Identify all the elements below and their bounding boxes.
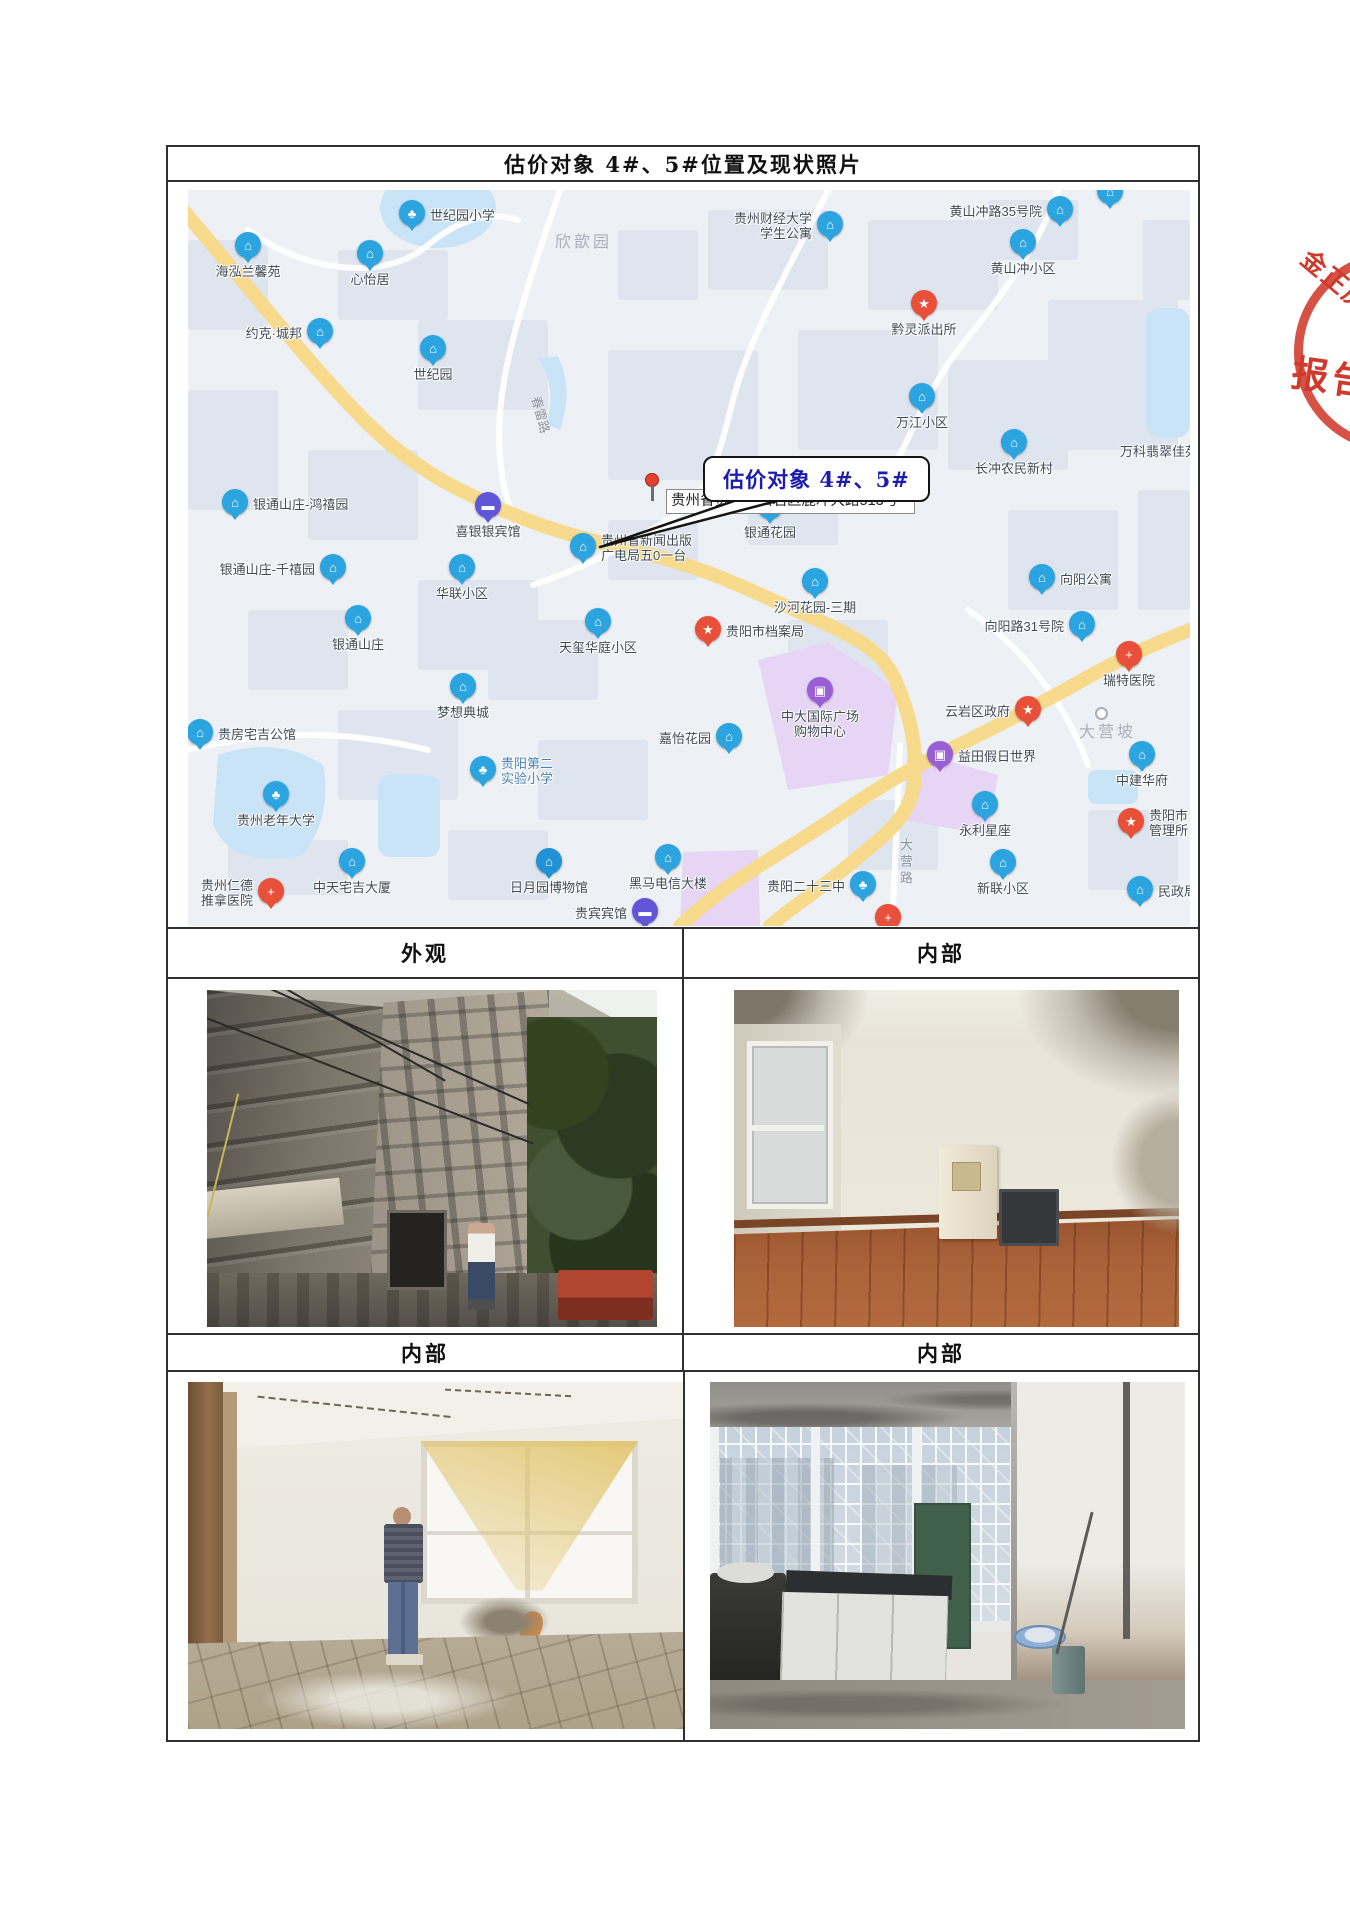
photo-header-interior-2: 内部 — [168, 1335, 682, 1370]
photo-interior-room-with-person — [188, 1382, 683, 1729]
photo-header-interior-3: 内部 — [682, 1335, 1198, 1370]
photo-row-2 — [168, 1370, 1198, 1742]
callout-tail — [188, 190, 1190, 926]
photo-row-1 — [168, 977, 1198, 1333]
subject-callout: 估价对象 4#、5# — [703, 456, 930, 502]
map-canvas: ♣世纪园小学⌂海泓兰馨苑⌂心怡居⌂约克·城邦⌂世纪园⌂贵州财经大学 学生公寓⌂黄… — [188, 190, 1190, 926]
photo-interior-kitchen — [710, 1382, 1185, 1729]
photo-building-exterior — [207, 990, 657, 1327]
table-title: 估价对象 4#、5#位置及现状照片 — [168, 147, 1198, 180]
photo-interior-room-1 — [734, 990, 1179, 1327]
photo-header-interior-1: 内部 — [682, 929, 1198, 977]
red-seal-stamp: 金正房 报告 — [1280, 240, 1350, 450]
photo-header-row-2: 内部 内部 — [168, 1333, 1198, 1370]
seal-text-2: 报告 — [1289, 343, 1350, 408]
document-page: 金正房 报告 估价对象 4#、5#位置及现状照片 — [0, 0, 1350, 1909]
photo-table: 估价对象 4#、5#位置及现状照片 — [166, 145, 1200, 1742]
map-row: ♣世纪园小学⌂海泓兰馨苑⌂心怡居⌂约克·城邦⌂世纪园⌂贵州财经大学 学生公寓⌂黄… — [168, 180, 1198, 927]
photo-header-row-1: 外观 内部 — [168, 927, 1198, 977]
photo-header-exterior: 外观 — [168, 929, 682, 977]
